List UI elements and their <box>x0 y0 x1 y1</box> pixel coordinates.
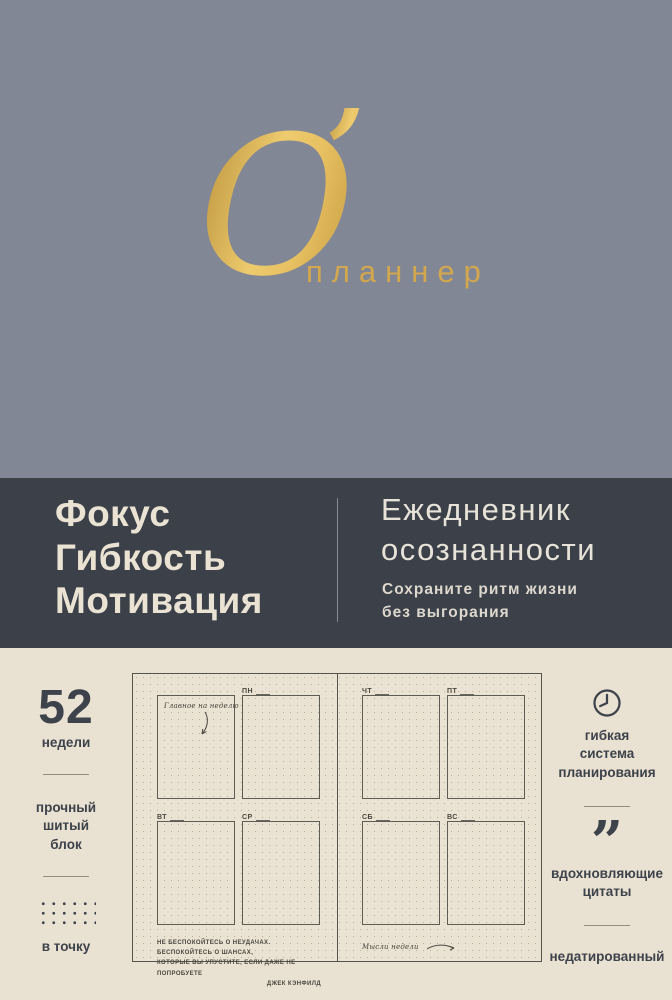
cover-subtitle: Сохраните ритм жизни без выгорания <box>382 578 578 625</box>
cover-top: O ’ планнер <box>0 0 672 478</box>
day-cell: ВС <box>447 808 525 934</box>
day-label: ВТ <box>157 814 167 821</box>
ideas-note-row: Мысли недели <box>338 934 541 952</box>
day-cell: ПН <box>242 682 320 808</box>
divider <box>584 806 630 807</box>
features-section: 52 недели прочный шитый блок в точку Гла… <box>0 648 672 1000</box>
day-cell: ЧТ <box>362 682 440 808</box>
day-box <box>242 695 320 799</box>
quotes-label: вдохновляющие цитаты <box>542 865 672 901</box>
day-label: ВС <box>447 814 458 821</box>
day-box <box>447 821 525 925</box>
planner-page-right: ЧТ ПТ СБ ВС <box>337 674 541 961</box>
planner-preview-column: Главное на неделю ПН <box>132 648 542 1000</box>
day-box <box>157 821 235 925</box>
day-label: СР <box>242 814 253 821</box>
features-right: гибкая система планирования ” вдохновляю… <box>542 648 672 1000</box>
day-box <box>362 695 440 799</box>
brand-apostrophe: ’ <box>326 96 365 208</box>
planner-spread: Главное на неделю ПН <box>132 673 542 962</box>
week-note: Главное на неделю <box>164 702 239 710</box>
day-box <box>362 821 440 925</box>
ideas-note: Мысли недели <box>362 943 419 951</box>
divider <box>43 774 89 775</box>
day-cell: СР <box>242 808 320 934</box>
planner-page-left: Главное на неделю ПН <box>133 674 337 961</box>
features-left: 52 недели прочный шитый блок в точку <box>0 648 132 1000</box>
quote-author: Джек Кэнфилд <box>157 979 327 989</box>
planning-label: гибкая система планирования <box>542 727 672 782</box>
quotes-icon: ” <box>542 817 672 861</box>
curved-arrow-down-icon <box>194 710 210 738</box>
day-box <box>447 695 525 799</box>
dots-label: в точку <box>0 938 132 956</box>
day-label: СБ <box>362 814 373 821</box>
day-label: ЧТ <box>362 688 372 695</box>
divider <box>43 876 89 877</box>
cover-keywords: Фокус Гибкость Мотивация <box>55 492 263 623</box>
quote-line: КОТОРЫЕ ВЫ УПУСТИТЕ, ЕСЛИ ДАЖЕ НЕ ПОПРОБ… <box>157 958 327 978</box>
weeks-number: 52 <box>0 684 132 732</box>
day-cell: ПТ <box>447 682 525 808</box>
cover-title: Ежедневник осознанности <box>381 490 596 569</box>
binding-label: прочный шитый блок <box>0 799 132 854</box>
book-cover: O ’ планнер Фокус Гибкость Мотивация Еже… <box>0 0 672 1000</box>
day-label: ПТ <box>447 688 457 695</box>
day-label: ПН <box>242 688 253 695</box>
brand-name: планнер <box>306 254 490 290</box>
divider <box>584 925 630 926</box>
undated-label: недатированный <box>542 948 672 966</box>
curved-arrow-right-icon <box>425 942 457 952</box>
dot-grid-icon <box>36 897 96 930</box>
week-note-cell: Главное на неделю <box>157 682 235 808</box>
clock-icon <box>542 688 672 723</box>
quote-line: НЕ БЕСПОКОЙТЕСЬ О НЕУДАЧАХ. БЕСПОКОЙТЕСЬ… <box>157 938 327 958</box>
day-cell: ВТ <box>157 808 235 934</box>
day-box <box>242 821 320 925</box>
title-band: Фокус Гибкость Мотивация Ежедневник осоз… <box>0 478 672 648</box>
day-cell: СБ <box>362 808 440 934</box>
week-note-box: Главное на неделю <box>157 695 235 799</box>
planner-quote: НЕ БЕСПОКОЙТЕСЬ О НЕУДАЧАХ. БЕСПОКОЙТЕСЬ… <box>133 934 337 989</box>
weeks-label: недели <box>0 734 132 752</box>
band-divider <box>337 498 338 622</box>
